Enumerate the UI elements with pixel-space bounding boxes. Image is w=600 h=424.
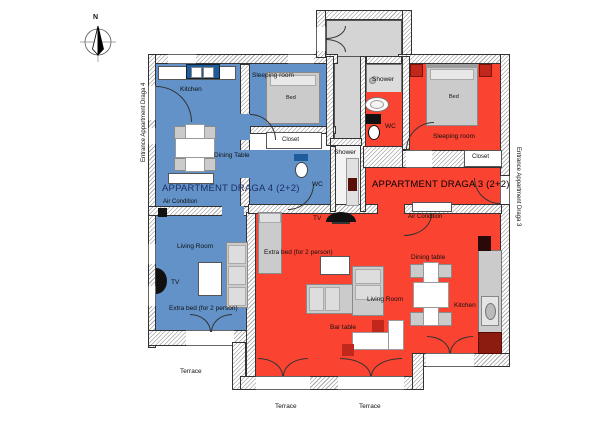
ac-outdoor-apt4 [158,208,167,217]
tv-stand-apt3 [332,222,350,224]
label-tv-apt3: TV [313,215,321,222]
label-tv-apt4: TV [171,279,179,286]
floor-plan: N Entrance Appartment Draga 4 Entrance A… [0,0,600,424]
sofa-cushion [325,287,340,311]
sofa-cushion [228,245,246,264]
label-dining-table-apt3: Dining table [411,254,445,261]
dining-chair-apt3 [410,264,424,278]
room-stairhall-lower [334,56,362,140]
title-apt4: APPARTMENT DRAGA 4 (2+2) [162,184,300,194]
compass-icon [79,22,117,64]
door-opening [240,114,250,140]
sink-basin [191,67,202,78]
toilet-tank-apt3 [366,114,381,124]
bar-stool-apt3 [372,320,384,332]
label-sleeping-room-apt4: Sleeping room [252,72,294,79]
label-sleeping-room-apt3: Sleeping room [433,133,475,140]
label-bar-table-apt3: Bar table [330,324,356,331]
kitchen-appliance-apt3 [478,236,491,251]
water-heater-apt4 [348,178,357,191]
stove-burner-apt3 [485,303,496,320]
dining-table-apt4 [175,138,215,158]
nightstand-apt3 [410,64,423,77]
dining-chair-apt3 [438,264,452,278]
label-shower-apt3: Shower [372,76,394,83]
label-bed-apt4: Bed [286,95,296,101]
terrace-door-opening-apt3 [426,353,474,367]
pillow-apt3 [430,69,474,80]
label-bed-apt3: Bed [449,94,459,100]
bar-stool-apt3 [342,344,354,356]
coffee-table-apt4 [198,262,222,296]
toilet-bowl-apt3 [368,125,380,140]
toilet-tank-apt4 [294,154,308,161]
label-terrace-apt3: Terrace [275,403,297,410]
window [148,128,156,144]
window [288,54,314,64]
label-air-condition-apt3: Air Condition [408,214,442,221]
nightstand-apt3 [479,64,492,77]
mask-bottom-right [424,367,504,377]
compass-north-label: N [93,14,98,22]
sink-basin [203,67,214,78]
door-opening [406,150,432,168]
sofa-cushion [309,287,324,311]
label-extra-bed-apt3: Extra bed (for 2 person) [264,249,333,256]
door-opening [316,27,326,51]
sofa-cushion [228,266,246,285]
wall [326,56,334,146]
label-dining-table-apt4: Dining Table [214,152,250,159]
label-wc-apt3: WC [385,123,396,130]
pillow-extra-bed-apt3 [259,213,281,223]
label-wc-apt4: WC [312,181,323,188]
title-apt3: APPARTMENT DRAGA 3 (2+2) [372,180,510,190]
wall [412,353,424,390]
label-extra-bed-apt4: Extra bed (for 2 person) [169,305,238,312]
window [148,286,156,306]
sink-basin-apt3 [370,100,384,109]
entrance-label-apt4: Entrance Appartment Draga 4 [141,83,147,162]
entrance-opening-apt4 [148,86,156,120]
wall [316,10,412,20]
dining-table-apt3 [413,282,449,308]
dining-chair-apt3 [410,312,424,326]
label-shower-apt4: Shower [334,149,356,156]
toilet-bowl-apt4 [295,162,308,178]
headboard-apt3 [426,64,478,68]
label-living-room-apt4: Living Room [177,243,213,250]
label-terrace-apt4: Terrace [180,368,202,375]
dining-chair-apt3 [438,312,452,326]
label-living-room-apt3: Living Room [367,296,403,303]
label-closet-apt4: Closet [282,137,299,144]
wall [398,54,510,64]
sofa-cushion [228,287,246,306]
label-kitchen-apt3: Kitchen [454,302,476,309]
label-terrace-apt3: Terrace [359,403,381,410]
bar-table-apt3 [388,320,404,350]
terrace-door-opening-apt4 [186,330,234,346]
wall [363,146,403,168]
door-opening [222,206,244,216]
window [168,54,196,64]
window [148,244,156,264]
terrace-door-opening-apt3 [338,376,404,390]
wall [366,56,402,64]
fridge-apt3 [478,332,502,354]
label-closet-apt3: Closet [472,154,489,161]
wall [330,138,362,146]
label-kitchen-apt4: Kitchen [180,86,202,93]
terrace-door-opening-apt3 [256,376,310,390]
sofa-cushion [355,269,381,284]
label-air-condition-apt4: Air Condition [163,199,197,206]
wall [360,56,366,212]
entrance-label-apt3: Entrance Appartment Draga 3 [515,147,521,226]
coffee-table-apt3 [320,256,350,275]
ac-unit-apt3 [412,202,452,212]
